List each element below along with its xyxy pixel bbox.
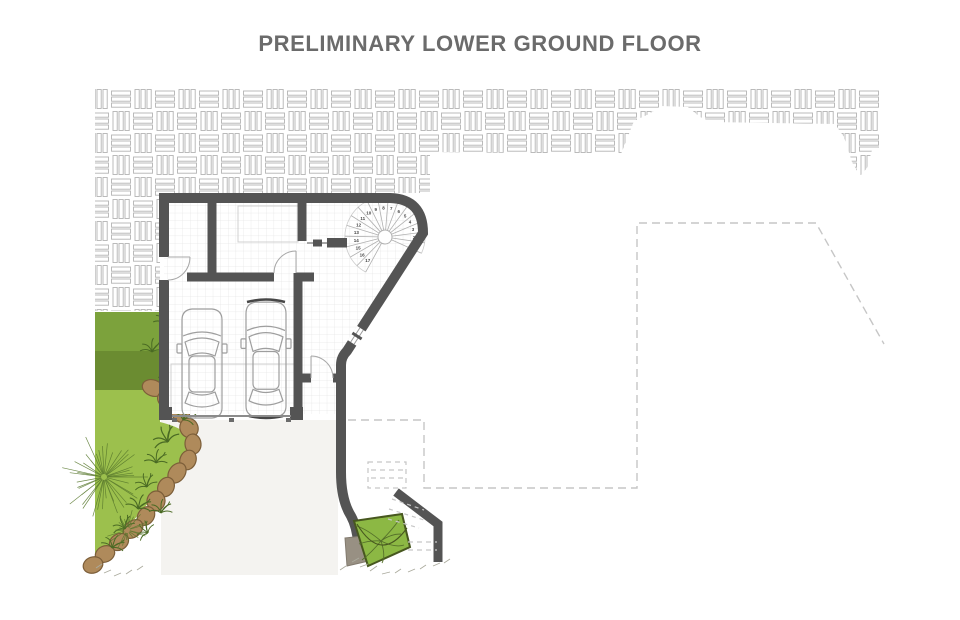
- stair-step-number: 11: [360, 216, 365, 221]
- stair-step-number: 10: [366, 211, 372, 216]
- stair-step-number: 15: [356, 246, 362, 251]
- stair-step-number: 14: [354, 238, 360, 243]
- page-title: PRELIMINARY LOWER GROUND FLOOR: [0, 31, 960, 57]
- stair-step-number: 16: [360, 252, 366, 257]
- stair-step-number: 13: [354, 230, 360, 235]
- floor-plan-drawing: 1234567891011121314151617: [0, 0, 960, 620]
- stair-newel: [378, 230, 392, 244]
- green-band-upper: [95, 312, 160, 351]
- garage-pier-right: [290, 407, 303, 420]
- stair-step-number: 17: [365, 258, 371, 263]
- upper-floor-dashed-outline: [348, 223, 884, 488]
- floor-plan-page: PRELIMINARY LOWER GROUND FLOOR: [0, 0, 960, 620]
- garage-pier-left: [159, 407, 172, 420]
- stair-step-number: 12: [356, 222, 362, 227]
